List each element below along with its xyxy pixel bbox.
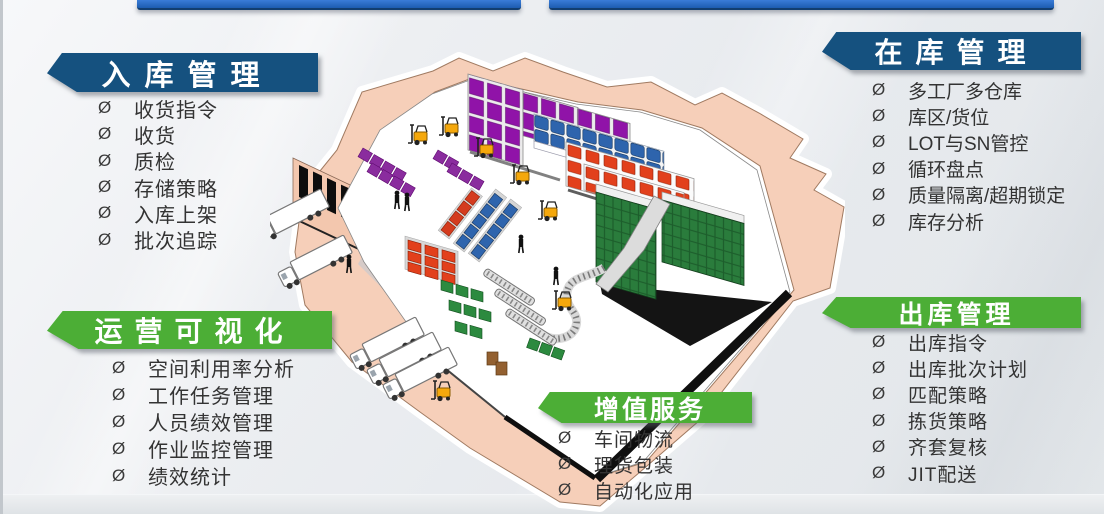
bullet-glyph: Ø bbox=[862, 132, 908, 152]
panel-outbound-banner: 出库管理 bbox=[822, 297, 1081, 328]
bullet-glyph: Ø bbox=[88, 151, 134, 171]
slide-left-edge bbox=[0, 0, 3, 514]
bullet-glyph: Ø bbox=[862, 211, 908, 231]
panel-instock-list: Ø多工厂多仓库 Ø库区/货位 ØLOT与SN管控 Ø循环盘点 Ø质量隔离/超期锁… bbox=[862, 77, 1065, 234]
bullet-glyph: Ø bbox=[862, 437, 908, 457]
panel-visualization-banner: 运营可视化 bbox=[47, 311, 332, 349]
bullet-glyph: Ø bbox=[862, 358, 908, 378]
list-item: Ø质量隔离/超期锁定 bbox=[862, 182, 1065, 208]
panel-value-added-title: 增值服务 bbox=[594, 390, 706, 426]
bullet-glyph: Ø bbox=[102, 358, 148, 378]
list-item: ØJIT配送 bbox=[862, 460, 1028, 486]
bullet-glyph: Ø bbox=[102, 385, 148, 405]
list-item: Ø质检 bbox=[88, 148, 218, 174]
panel-visualization-list: Ø空间利用率分析 Ø工作任务管理 Ø人员绩效管理 Ø作业监控管理 Ø绩效统计 bbox=[102, 354, 295, 489]
list-item: Ø拣货策略 bbox=[862, 408, 1028, 434]
list-item: Ø匹配策略 bbox=[862, 381, 1028, 407]
list-item: ØLOT与SN管控 bbox=[862, 129, 1065, 155]
list-item: Ø批次追踪 bbox=[88, 226, 218, 252]
list-item: Ø多工厂多仓库 bbox=[862, 77, 1065, 103]
top-title-bar-right bbox=[549, 0, 1054, 10]
bullet-glyph: Ø bbox=[862, 411, 908, 431]
bullet-glyph: Ø bbox=[862, 106, 908, 126]
panel-visualization-title: 运营可视化 bbox=[94, 310, 294, 350]
bullet-glyph: Ø bbox=[862, 384, 908, 404]
list-item: Ø库区/货位 bbox=[862, 103, 1065, 129]
list-item: Ø入库上架 bbox=[88, 200, 218, 226]
bullet-glyph: Ø bbox=[862, 80, 908, 100]
panel-value-added-list: Ø车间物流 Ø理货包装 Ø自动化应用 bbox=[548, 425, 694, 503]
panel-inbound-banner: 入库管理 bbox=[47, 53, 318, 92]
panel-outbound-title: 出库管理 bbox=[898, 295, 1014, 331]
top-title-bar-left bbox=[137, 0, 521, 10]
bullet-glyph: Ø bbox=[548, 454, 594, 474]
list-item: Ø出库指令 bbox=[862, 329, 1028, 355]
list-item: Ø收货指令 bbox=[88, 95, 218, 121]
bullet-glyph: Ø bbox=[548, 428, 594, 448]
bullet-glyph: Ø bbox=[88, 203, 134, 223]
list-item: Ø齐套复核 bbox=[862, 434, 1028, 460]
bullet-glyph: Ø bbox=[88, 124, 134, 144]
list-item: Ø理货包装 bbox=[548, 451, 694, 477]
list-item: Ø库存分析 bbox=[862, 208, 1065, 234]
panel-instock-banner: 在库管理 bbox=[822, 32, 1081, 70]
list-item: Ø收货 bbox=[88, 121, 218, 147]
list-item: Ø存储策略 bbox=[88, 174, 218, 200]
list-item: Ø绩效统计 bbox=[102, 462, 295, 489]
panel-instock-title: 在库管理 bbox=[874, 31, 1038, 71]
list-item: Ø循环盘点 bbox=[862, 156, 1065, 182]
bullet-glyph: Ø bbox=[88, 230, 134, 250]
list-item: Ø工作任务管理 bbox=[102, 381, 295, 408]
bullet-glyph: Ø bbox=[862, 463, 908, 483]
bullet-glyph: Ø bbox=[862, 332, 908, 352]
bullet-glyph: Ø bbox=[88, 98, 134, 118]
bullet-glyph: Ø bbox=[102, 412, 148, 432]
slide: 入库管理 Ø收货指令 Ø收货 Ø质检 Ø存储策略 Ø入库上架 Ø批次追踪 在库管… bbox=[0, 0, 1104, 514]
list-item: Ø出库批次计划 bbox=[862, 355, 1028, 381]
panel-value-added-banner: 增值服务 bbox=[538, 392, 752, 423]
bullet-glyph: Ø bbox=[862, 159, 908, 179]
list-item: Ø空间利用率分析 bbox=[102, 354, 295, 381]
bullet-glyph: Ø bbox=[88, 177, 134, 197]
list-item: Ø自动化应用 bbox=[548, 477, 694, 503]
list-item: Ø车间物流 bbox=[548, 425, 694, 451]
panel-inbound-list: Ø收货指令 Ø收货 Ø质检 Ø存储策略 Ø入库上架 Ø批次追踪 bbox=[88, 95, 218, 253]
bullet-glyph: Ø bbox=[102, 466, 148, 486]
list-item: Ø作业监控管理 bbox=[102, 435, 295, 462]
panel-outbound-list: Ø出库指令 Ø出库批次计划 Ø匹配策略 Ø拣货策略 Ø齐套复核 ØJIT配送 bbox=[862, 329, 1028, 486]
panel-inbound-title: 入库管理 bbox=[101, 52, 273, 94]
bullet-glyph: Ø bbox=[548, 480, 594, 500]
list-item: Ø人员绩效管理 bbox=[102, 408, 295, 435]
bullet-glyph: Ø bbox=[862, 185, 908, 205]
bullet-glyph: Ø bbox=[102, 439, 148, 459]
